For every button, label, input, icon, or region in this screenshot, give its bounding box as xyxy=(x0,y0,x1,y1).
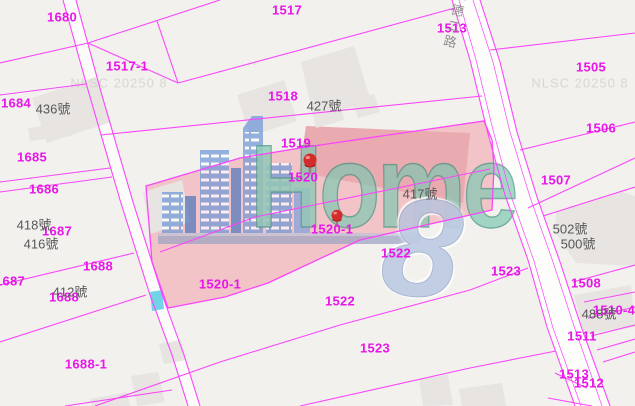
parcel-number-label: 1684 xyxy=(1,96,31,111)
parcel-number-label: 1517 xyxy=(272,3,302,18)
house-number-label: 500號 xyxy=(561,234,596,253)
parcel-number-label: 1522 xyxy=(381,246,411,261)
parcel-number-label: 1685 xyxy=(17,150,47,165)
parcel-number-label: 1520-1 xyxy=(311,222,353,237)
parcel-number-label: 1687 xyxy=(0,274,25,289)
parcel-number-label: 1517-1 xyxy=(106,59,148,74)
parcel-number-label: 1520-1 xyxy=(199,277,241,292)
parcel-number-label: 1519 xyxy=(281,136,311,151)
parcel-number-label: 1520 xyxy=(288,170,318,185)
house-number-label: 427號 xyxy=(307,96,342,115)
parcel-number-label: 1511 xyxy=(567,329,596,344)
parcel-number-label: 1688 xyxy=(83,259,113,274)
parcel-number-label: 1508 xyxy=(571,276,601,291)
parcel-number-label: 1518 xyxy=(268,89,298,104)
house-number-label: 436號 xyxy=(36,99,71,118)
house-number-label: 418號 xyxy=(17,215,52,234)
parcel-number-label: 1523 xyxy=(360,341,390,356)
parcel-number-label: 1523 xyxy=(491,264,521,279)
parcel-number-label: 1680 xyxy=(47,10,77,25)
parcel-number-label: 1688-1 xyxy=(65,357,107,372)
house-number-label: 416號 xyxy=(24,234,59,253)
house-number-label: 488號 xyxy=(582,304,617,323)
parcel-number-label: 1522 xyxy=(325,294,355,309)
parcel-number-label: 1507 xyxy=(541,173,571,188)
parcel-number-label: 1505 xyxy=(576,60,606,75)
parcel-number-label: 1686 xyxy=(29,182,59,197)
house-number-label: 412號 xyxy=(53,282,88,301)
house-number-label: 417號 xyxy=(403,184,438,203)
map-canvas[interactable]: NLSC 20250 8NLSC 20250 8 xyxy=(0,0,635,406)
parcel-number-label: 1506 xyxy=(586,121,616,136)
parcel-number-label: 1512 xyxy=(574,376,604,391)
label-layer: 1680151715131517-11505168415181506151916… xyxy=(0,0,635,406)
